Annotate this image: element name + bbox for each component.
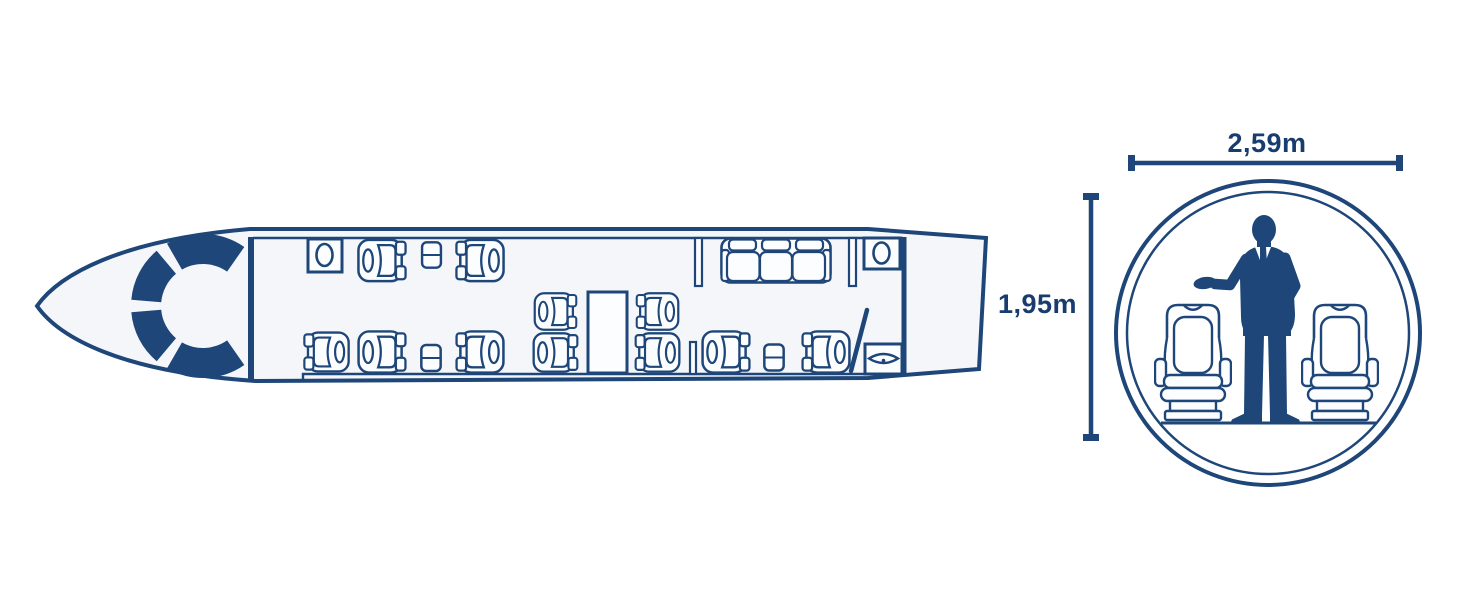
height-dimension-line xyxy=(1083,193,1099,441)
club-seat xyxy=(636,333,680,371)
galley-cabinet xyxy=(308,239,342,272)
club-seat xyxy=(637,293,679,329)
club-seat xyxy=(359,331,406,372)
width-dimension-label: 2,59m xyxy=(1227,128,1306,158)
club-seat xyxy=(457,331,504,372)
toilet-icon xyxy=(864,238,900,269)
side-table xyxy=(421,345,440,371)
club-seat xyxy=(358,240,405,281)
height-dimension-label: 1,95m xyxy=(998,289,1077,319)
partition-mid-bottom xyxy=(690,342,696,374)
side-table xyxy=(764,344,783,370)
club-seat xyxy=(703,331,750,372)
aircraft-floorplan xyxy=(37,229,986,381)
divan-sofa xyxy=(722,239,831,283)
club-seat xyxy=(456,240,503,281)
club-seat xyxy=(304,333,348,372)
partition-mid-top xyxy=(695,238,702,286)
fuselage-cross-section: 2,59m 1,95m xyxy=(998,128,1420,485)
conference-table xyxy=(588,292,627,373)
conference-group xyxy=(534,292,680,373)
side-table xyxy=(422,242,441,267)
club-seat xyxy=(803,331,850,372)
cabin-layout-diagram: 2,59m 1,95m xyxy=(0,0,1475,613)
partition-aft-top xyxy=(849,238,856,286)
club-seat xyxy=(535,293,577,329)
club-seat xyxy=(534,333,578,371)
sink-icon xyxy=(865,344,902,374)
diagram-svg: 2,59m 1,95m xyxy=(0,0,1475,613)
